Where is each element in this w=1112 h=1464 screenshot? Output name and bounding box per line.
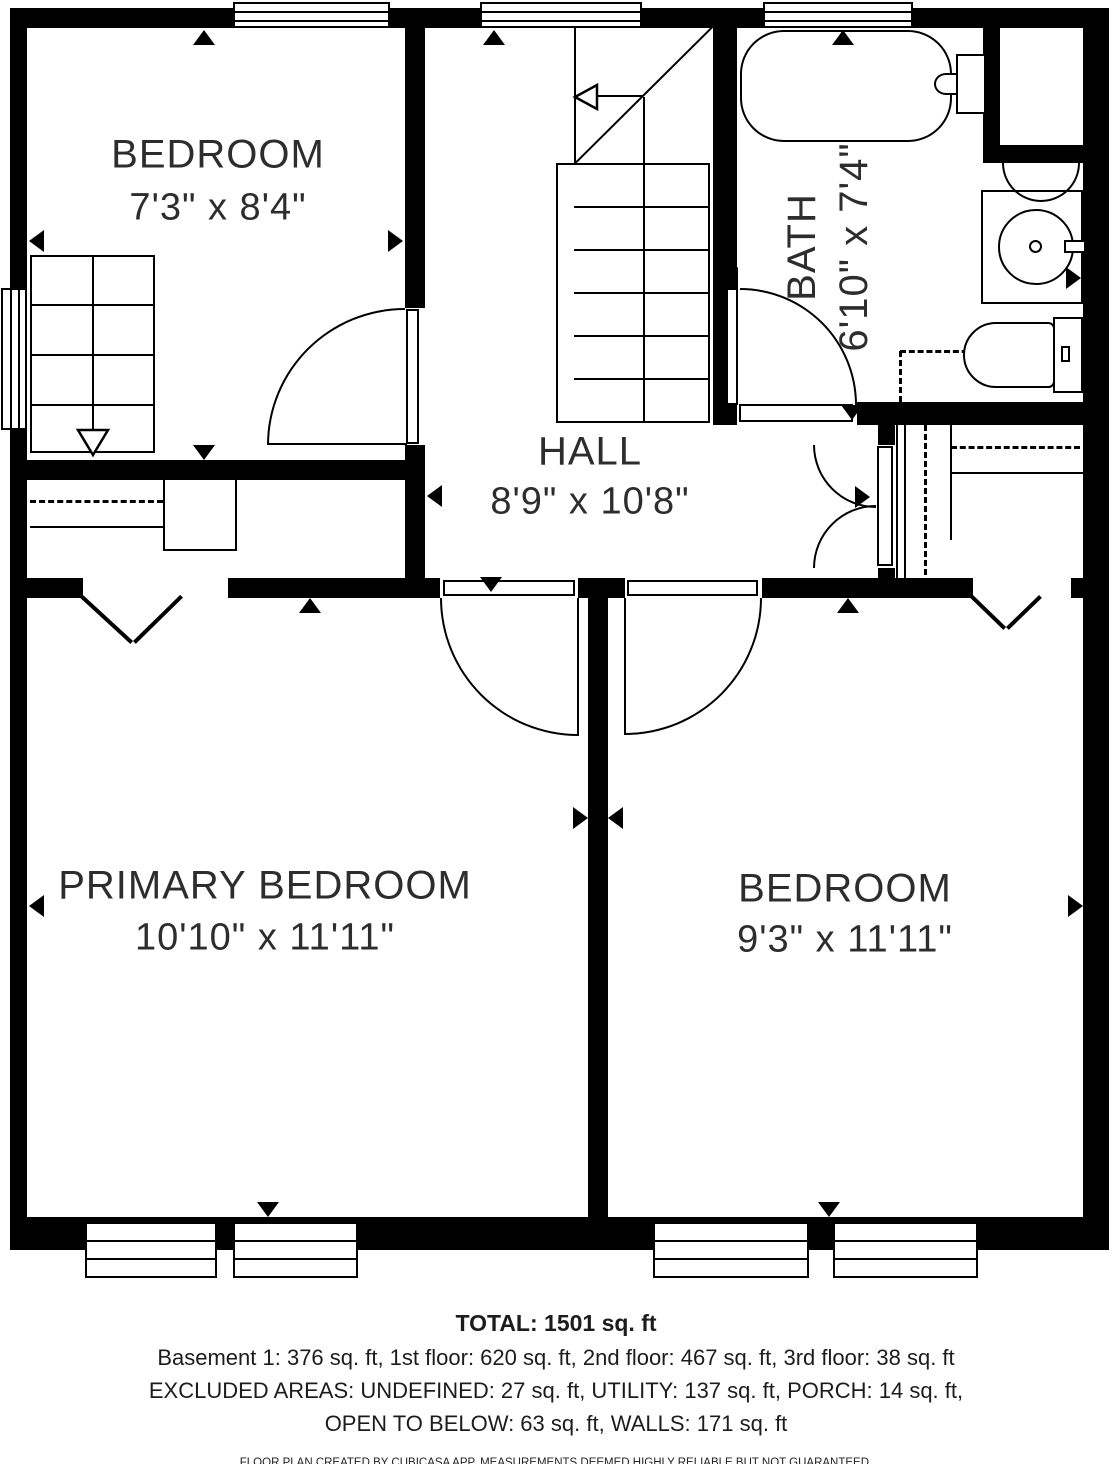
excluded-areas-2: OPEN TO BELOW: 63 sq. ft, WALLS: 171 sq.… <box>0 1411 1112 1437</box>
floor-plan: BEDROOM 7'3" x 8'4" HALL 8'9" x 10'8" BA… <box>0 0 1112 1464</box>
room-dims-bedroom2: 9'3" x 11'11" <box>737 919 953 962</box>
area-summary: TOTAL: 1501 sq. ft Basement 1: 376 sq. f… <box>0 1310 1112 1464</box>
room-label-bedroom-small: BEDROOM <box>111 133 325 178</box>
stair-up-arrowhead <box>575 85 597 109</box>
total-area: TOTAL: 1501 sq. ft <box>0 1310 1112 1337</box>
room-dims-primary-bedroom: 10'10" x 11'11" <box>135 917 395 960</box>
room-dims-hall: 8'9" x 10'8" <box>490 481 689 524</box>
excluded-areas-1: EXCLUDED AREAS: UNDEFINED: 27 sq. ft, UT… <box>0 1378 1112 1404</box>
room-label-bath: BATH <box>776 193 828 301</box>
room-label-primary-bedroom: PRIMARY BEDROOM <box>58 864 472 909</box>
floor-areas: Basement 1: 376 sq. ft, 1st floor: 620 s… <box>0 1345 1112 1371</box>
room-dims-bath: 6'10" x 7'4" <box>828 142 880 351</box>
room-label-bedroom2: BEDROOM <box>738 867 952 912</box>
room-label-bath-group: BATH 6'10" x 7'4" <box>773 107 883 387</box>
room-label-hall: HALL <box>538 430 642 475</box>
disclaimer: FLOOR PLAN CREATED BY CUBICASA APP. MEAS… <box>0 1457 1112 1464</box>
room-dims-bedroom-small: 7'3" x 8'4" <box>129 187 306 230</box>
mini-stair-down-arrowhead <box>78 430 108 455</box>
